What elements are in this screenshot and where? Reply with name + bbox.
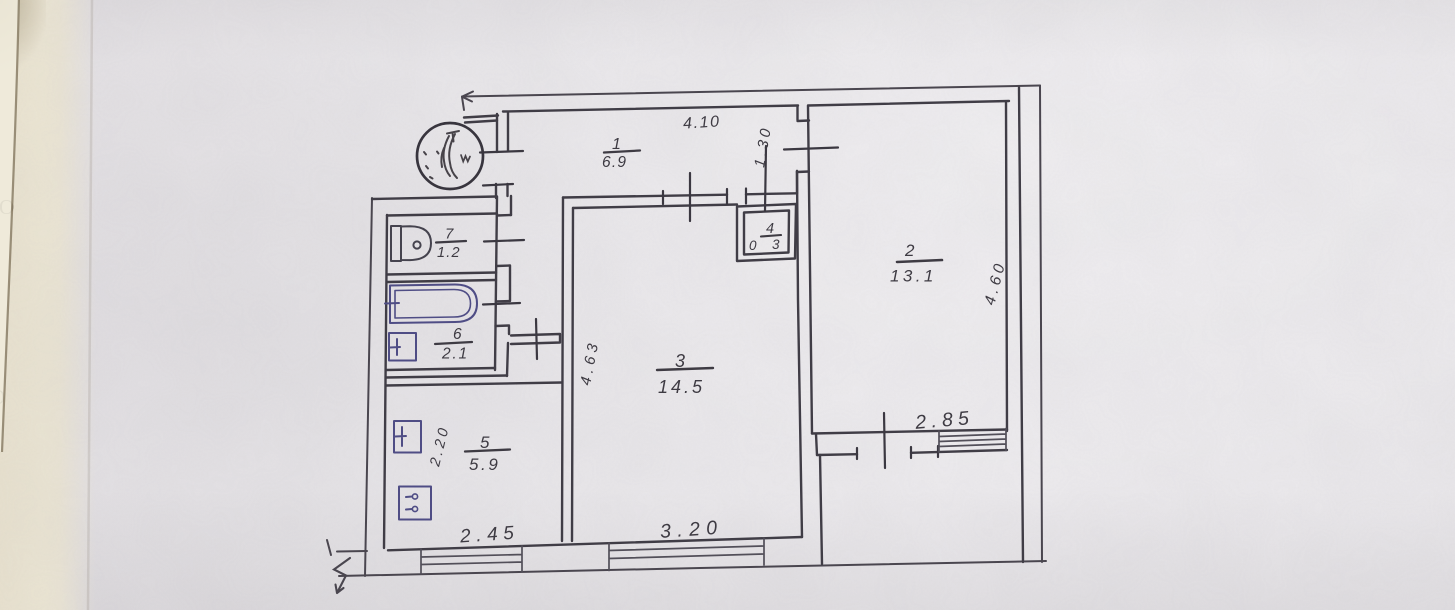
svg-text:3.20: 3.20 — [659, 516, 724, 542]
svg-text:2: 2 — [904, 241, 915, 260]
svg-text:13.1: 13.1 — [890, 267, 937, 286]
svg-text:2.1: 2.1 — [441, 346, 469, 363]
svg-text:1.2: 1.2 — [437, 245, 461, 261]
svg-text:7: 7 — [445, 226, 454, 243]
svg-text:0: 0 — [749, 238, 757, 253]
svg-text:5.9: 5.9 — [469, 455, 500, 474]
svg-text:6.9: 6.9 — [602, 154, 627, 171]
svg-text:6: 6 — [453, 326, 462, 343]
svg-text:1: 1 — [612, 136, 621, 153]
svg-text:4.10: 4.10 — [683, 113, 722, 132]
svg-text:2.45: 2.45 — [458, 522, 520, 547]
svg-text:3: 3 — [772, 237, 780, 252]
svg-text:5: 5 — [480, 433, 490, 452]
svg-text:14.5: 14.5 — [658, 377, 705, 397]
